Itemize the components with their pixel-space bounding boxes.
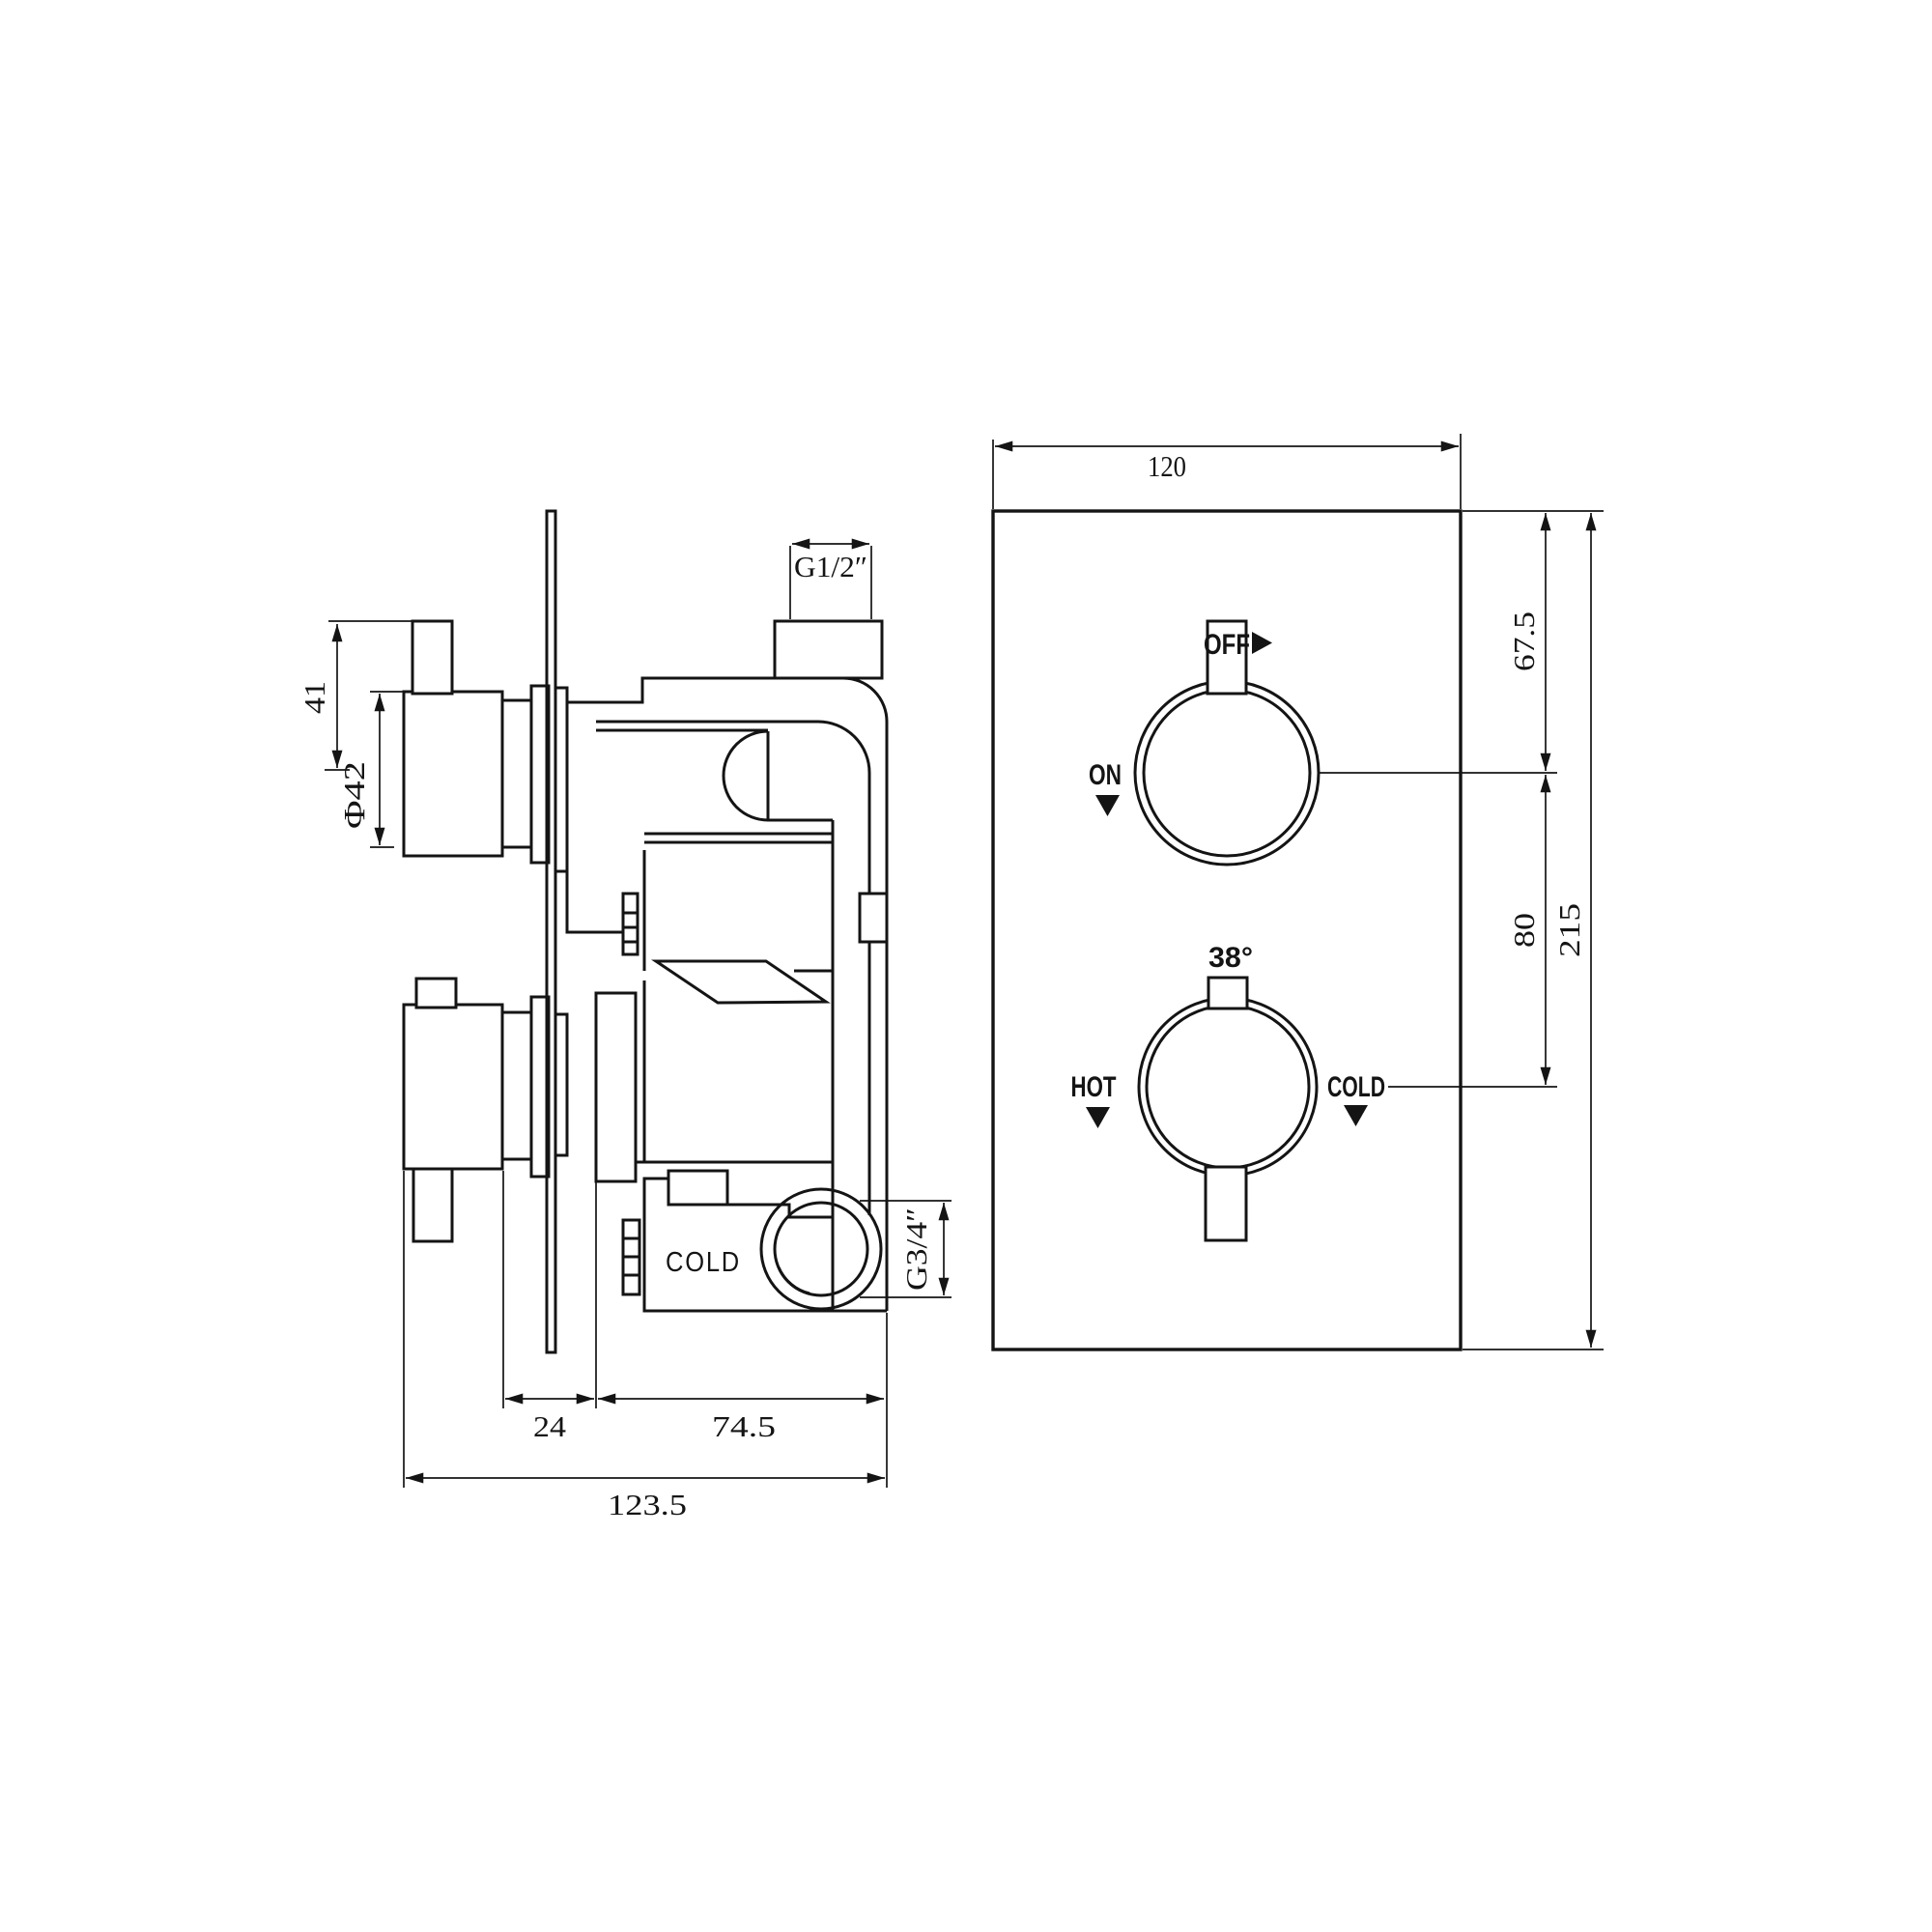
cartridge-dome bbox=[724, 731, 768, 820]
dim-text-handle-length: 41 bbox=[298, 681, 331, 714]
lower-handle-cylinder bbox=[404, 1005, 502, 1169]
dim-text-total-depth: 123.5 bbox=[608, 1488, 687, 1521]
dim-text-top-thread: G1/2″ bbox=[794, 550, 867, 583]
waterway-channel bbox=[656, 961, 826, 1003]
outlet-elbow-outer bbox=[843, 678, 887, 1311]
dim-text-bottom-thread: G3/4″ bbox=[899, 1207, 933, 1291]
dim-text-knob-spacing: 80 bbox=[1507, 913, 1541, 948]
temperature-knob-inner-ring bbox=[1147, 1006, 1309, 1168]
inlet-nut-chamfer-arc bbox=[779, 1267, 810, 1293]
temperature-knob-outer-ring bbox=[1139, 998, 1317, 1176]
cold-inlet-block bbox=[623, 894, 887, 1311]
temp-setting-label: 38° bbox=[1208, 942, 1253, 974]
lower-handle-top-tab bbox=[416, 979, 456, 1008]
lower-body-flange bbox=[555, 1014, 567, 1155]
dim-text-handle-to-body: 24 bbox=[533, 1409, 567, 1443]
lower-handle-lever bbox=[413, 1169, 452, 1241]
body-left-face bbox=[567, 702, 623, 932]
dim-text-handle-diameter: Φ42 bbox=[337, 761, 371, 829]
top-outlet-pipe-stub bbox=[775, 621, 882, 678]
upper-body-flange bbox=[555, 688, 567, 871]
dim-text-knob1-offset: 67.5 bbox=[1507, 611, 1541, 671]
inlet-ribbed-end bbox=[623, 1220, 639, 1294]
off-direction-arrow-icon bbox=[1252, 632, 1272, 654]
technical-drawing-page: 41 Φ42 G1/2″ COLD G3/4″ 24 74.5 bbox=[0, 0, 1932, 1932]
hot-direction-arrow-icon bbox=[1086, 1107, 1110, 1128]
cold-inlet-label: COLD bbox=[666, 1247, 741, 1278]
on-label: ON bbox=[1089, 759, 1122, 791]
front-view: OFF ON 38° HOT COLD 120 bbox=[993, 434, 1604, 1350]
on-direction-arrow-icon bbox=[1095, 795, 1120, 816]
upper-handle-tab bbox=[412, 621, 452, 694]
dim-text-plate-width: 120 bbox=[1148, 449, 1186, 483]
temperature-knob-lever bbox=[1206, 1167, 1246, 1240]
dim-text-plate-height: 215 bbox=[1552, 903, 1586, 957]
hot-label: HOT bbox=[1071, 1071, 1117, 1103]
upper-handle-cylinder bbox=[404, 692, 502, 856]
off-label: OFF bbox=[1204, 629, 1250, 661]
side-view: 41 Φ42 G1/2″ COLD G3/4″ 24 74.5 bbox=[298, 511, 952, 1521]
cold-label: COLD bbox=[1327, 1071, 1385, 1103]
on-off-knob-inner-ring bbox=[1144, 690, 1310, 856]
inlet-nut-outer-circle bbox=[761, 1189, 881, 1309]
body-top-edge bbox=[567, 678, 843, 702]
lower-handle-side bbox=[404, 979, 567, 1241]
mid-ribbed-nipple bbox=[623, 894, 638, 954]
on-off-knob-outer-ring bbox=[1135, 681, 1319, 865]
on-off-knob: OFF ON bbox=[1089, 621, 1319, 865]
front-view-dimensions: 120 67.5 80 215 bbox=[993, 434, 1604, 1350]
upper-handle-collar bbox=[502, 700, 531, 847]
side-view-dimensions: 41 Φ42 G1/2″ COLD G3/4″ 24 74.5 bbox=[298, 544, 952, 1521]
down-pipe-union-nut bbox=[860, 894, 887, 942]
lower-handle-collar bbox=[502, 1012, 531, 1159]
dim-text-body-depth: 74.5 bbox=[712, 1409, 776, 1443]
outlet-elbow-inner bbox=[818, 722, 869, 1215]
valve-drawing-canvas: 41 Φ42 G1/2″ COLD G3/4″ 24 74.5 bbox=[0, 0, 1932, 1932]
lower-cartridge-housing bbox=[596, 993, 636, 1181]
inlet-block-top-boss bbox=[668, 1171, 727, 1205]
trim-plate-edge bbox=[547, 511, 555, 1352]
temperature-knob-indicator-tab bbox=[1208, 978, 1247, 1009]
cold-direction-arrow-icon bbox=[1344, 1105, 1368, 1126]
temperature-knob: 38° HOT COLD bbox=[1071, 942, 1386, 1240]
upper-handle-side bbox=[404, 621, 567, 871]
